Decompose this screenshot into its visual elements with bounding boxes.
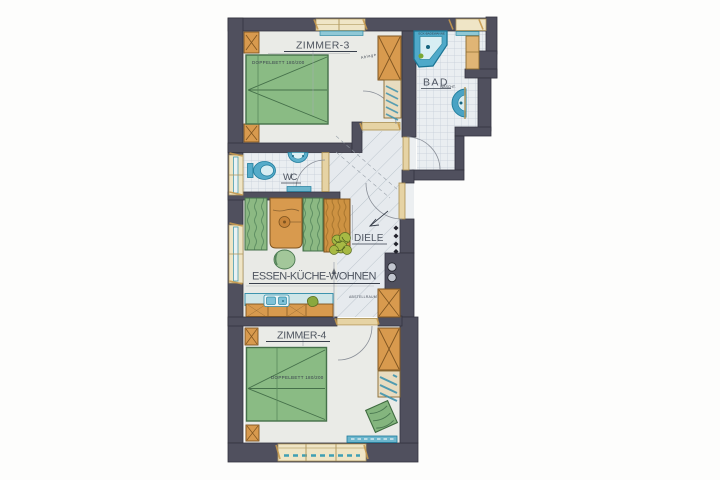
svg-text:ECK-BADEWANNE: ECK-BADEWANNE xyxy=(419,32,445,36)
svg-text:BAD: BAD xyxy=(423,77,448,89)
svg-text:DIELE: DIELE xyxy=(354,233,384,244)
svg-text:DOPPELBETT 180/200: DOPPELBETT 180/200 xyxy=(252,60,305,65)
svg-text:ESSEN-KÜCHE-WOHNEN: ESSEN-KÜCHE-WOHNEN xyxy=(252,271,377,283)
svg-text:WC: WC xyxy=(283,172,298,183)
svg-text:ABSTELLRAUM: ABSTELLRAUM xyxy=(349,295,377,299)
svg-text:ZIMMER-3: ZIMMER-3 xyxy=(296,40,350,52)
svg-text:DOPPELBETT 180/200: DOPPELBETT 180/200 xyxy=(271,375,324,380)
svg-text:ZIMMER-4: ZIMMER-4 xyxy=(277,330,327,342)
